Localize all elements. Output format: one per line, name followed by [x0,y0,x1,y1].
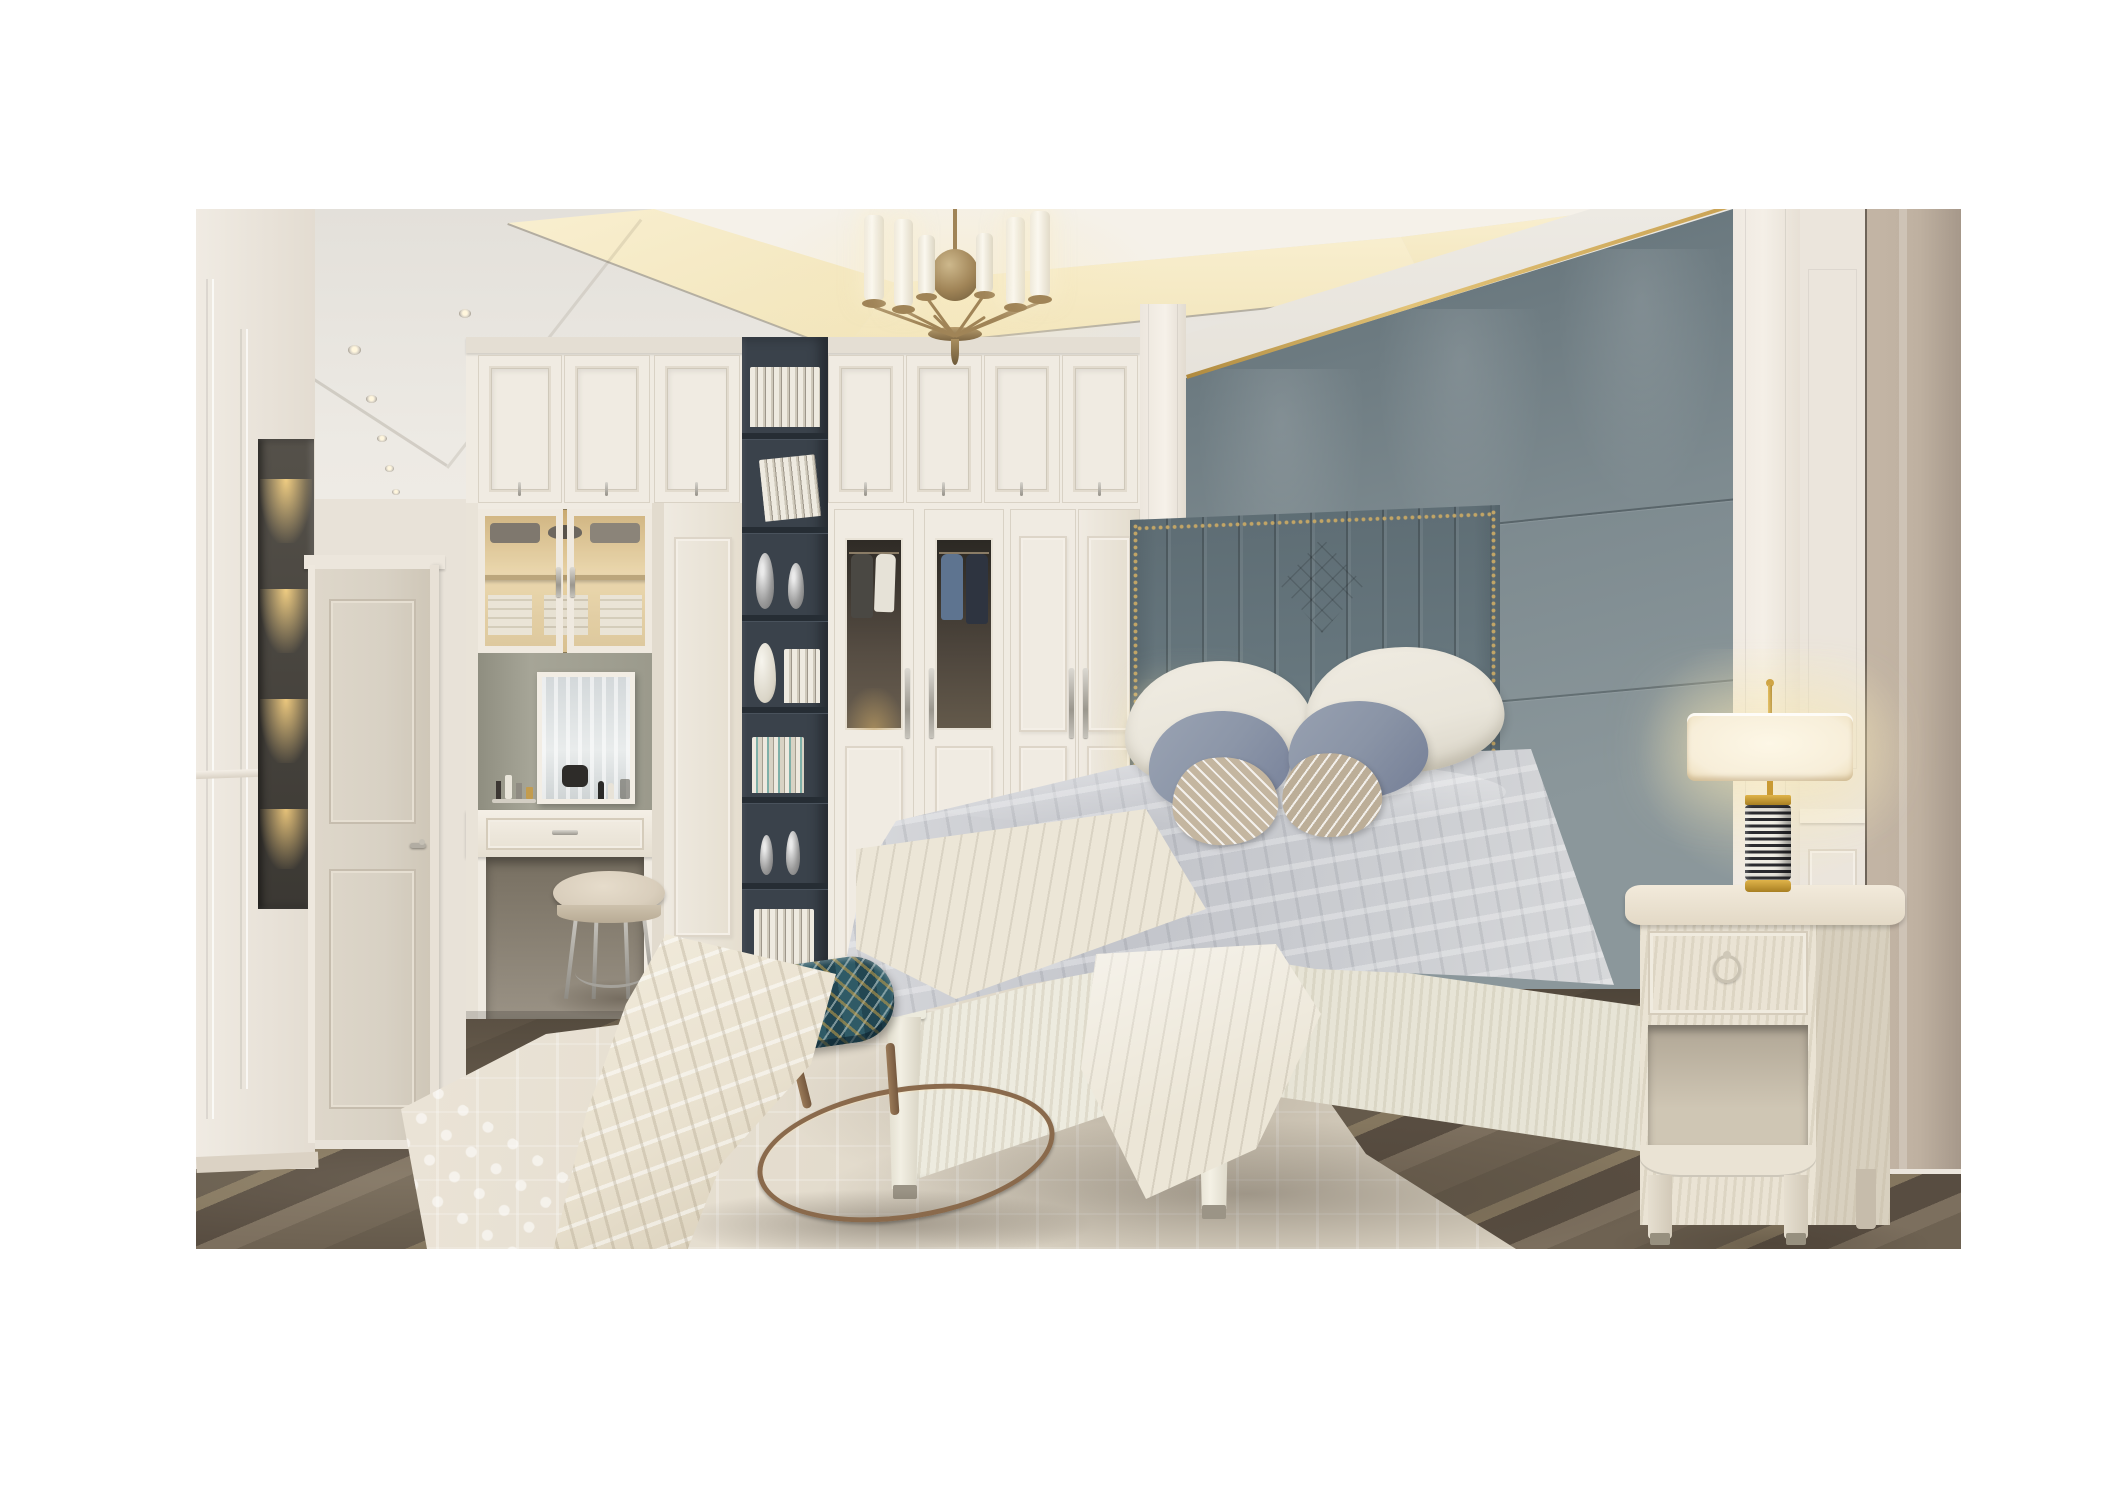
hanging-shirt [874,554,896,613]
niche-shelf-light [260,589,312,653]
lamp-base [1745,880,1791,892]
perfume-bottle [526,787,533,799]
lamp-rod [1768,685,1772,715]
cosmetic-bottle [516,783,522,799]
recessed-spotlight [459,309,471,318]
candle-shade [976,233,993,293]
wardrobe-handle [1069,668,1074,738]
apron [1640,1145,1816,1177]
candle-cup [1004,303,1027,312]
door-panel [1019,536,1067,732]
candle-cup [892,305,915,314]
lamp-shade [1687,713,1853,781]
candle-cup [974,291,995,299]
nightstand-leg [1648,1175,1672,1239]
book-row [752,737,804,793]
cabinet-handle [570,567,575,597]
silver-urn [786,831,800,875]
niche-shelf-light [260,809,312,869]
ring-pull [1713,955,1741,983]
glass-door-frame [478,509,563,653]
candle-cup [1028,295,1052,304]
door-panel [329,599,416,824]
chandelier [836,209,1076,399]
candle-shade [1006,217,1025,305]
drawer-handle [552,830,578,835]
figurine [608,783,614,799]
ring-pull-mount [1723,951,1731,959]
glass-door-frame [567,509,652,653]
niche-shelf-light [260,699,312,763]
nightstand-leg [1784,1175,1808,1239]
recessed-spotlight [377,435,387,442]
recessed-spotlight [392,489,400,495]
bookshelf [742,337,828,1019]
silver-urn [760,835,773,875]
wall-spotlight-pool [1556,249,1726,509]
hanging-shirt-blue [941,554,963,620]
silver-vase [788,563,804,609]
door-panel [329,869,416,1109]
wall-panel-molding [206,279,208,1119]
candle-shade [918,235,935,295]
recessed-spotlight [366,395,377,403]
hall-door-frame [430,565,439,1143]
shelf-board [742,797,828,803]
candle-cup [862,299,886,308]
display-cabinet [478,509,652,653]
stool-seat-skirt [557,905,661,923]
wardrobe-upper-door [564,355,650,503]
silver-vase [756,553,774,609]
book-row [759,454,821,522]
bed-post-foot [1202,1205,1226,1219]
chandelier-finial [951,339,959,365]
glass-pane [935,538,993,730]
wall-panel-molding [246,329,248,1089]
cosmetic-bottle [496,781,501,799]
cabinet-handle [556,567,561,597]
leg-cap [1786,1233,1806,1245]
shelf-board [742,527,828,533]
stool-leg [564,917,578,999]
hall-door-frame [308,565,315,1143]
hanging-jacket-navy [966,554,988,624]
cosmetic-bottle [505,775,512,799]
recessed-spotlight [385,465,394,472]
shelf-board [742,707,828,713]
hall-door [315,569,430,1140]
book-row [750,367,820,427]
wardrobe-handle [1083,668,1088,738]
nightstand-leg [1856,1169,1876,1229]
glass-pane [845,538,903,730]
recessed-spotlight [348,345,361,355]
vanity-niche [478,653,652,810]
page-canvas [0,0,2127,1496]
vanity-counter [466,810,664,857]
column-panel [674,537,732,937]
wall-panel-molding [212,279,214,1119]
figurine [598,781,604,799]
hall-door-frame [304,555,445,569]
bedroom-photo [196,209,1961,1249]
wardrobe-upper-door [478,355,562,503]
open-shelf [1648,1025,1808,1145]
nightstand-right [1625,885,1905,1249]
book-row [784,649,820,703]
candle-cup [916,293,937,301]
makeup-mirror [562,765,588,787]
table-lamp-right [1687,679,1857,895]
wall-panel-molding [240,329,242,1089]
lamp-striped-body [1745,805,1791,880]
white-vase [754,643,776,703]
chandelier-sphere [931,249,979,301]
candle-shade [1030,211,1050,297]
shelf-board [742,433,828,439]
wardrobe-handle [929,668,934,738]
niche-shelf-light [260,479,312,543]
hanging-jacket [851,554,873,618]
door-handle-rose [419,839,425,845]
leg-cap [1650,1233,1670,1245]
wardrobe-upper-door [654,355,740,503]
chandelier-stem [953,209,957,251]
cosmetics-tray [492,799,536,803]
candle-shade [864,215,884,301]
shelf-board [742,883,828,889]
perfume-bottle [620,779,630,799]
display-niche [258,439,314,909]
stool-stretcher [575,957,647,988]
vanity-side-column [466,503,478,1019]
wardrobe-handle [905,668,910,738]
shelf-board [742,615,828,621]
nightstand-side [1816,909,1890,1225]
lamp-cap [1745,795,1791,805]
interior-light-pool [845,688,903,730]
candle-shade [894,219,913,307]
